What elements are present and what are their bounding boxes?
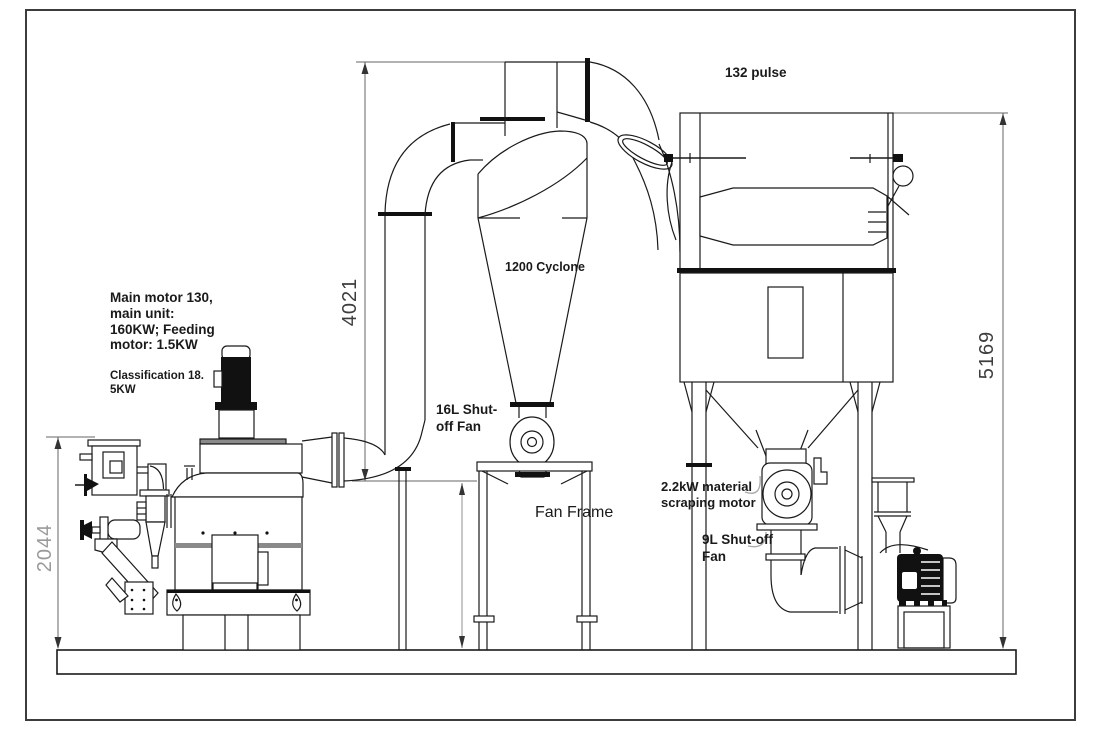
outlet-duct <box>302 117 545 650</box>
engineering-drawing-page: Main motor 130, main unit: 160KW; Feedin… <box>0 0 1101 731</box>
shutoff-fan-16l-line: off Fan <box>436 419 497 436</box>
main-fan-unit <box>872 478 956 648</box>
scraping-motor-line: 2.2kW material <box>661 479 756 495</box>
cyclone-to-baghouse-duct <box>557 58 680 252</box>
dimension-5169-text: 5169 <box>976 315 1000 395</box>
dimension-2044-text: 2044 <box>34 508 58 588</box>
dimension-frame-height <box>459 483 465 648</box>
fan-frame-label: Fan Frame <box>535 504 613 522</box>
classification-note-line: Classification 18. <box>110 370 204 384</box>
diagram-canvas <box>0 0 1101 731</box>
main-motor-note-line: Main motor 130, <box>110 290 215 306</box>
scraping-motor-label: 2.2kW material scraping motor <box>661 479 756 511</box>
feeder-assembly <box>75 440 171 614</box>
shutoff-fan-9l-line: 9L Shut-off <box>702 531 773 548</box>
classification-note: Classification 18. 5KW <box>110 370 204 397</box>
classification-note-line: 5KW <box>110 384 204 398</box>
cyclone-label: 1200 Cyclone <box>505 260 585 274</box>
pulse-baghouse <box>664 113 913 650</box>
main-motor-note-line: motor: 1.5KW <box>110 337 215 353</box>
foundation-base <box>57 650 1016 674</box>
scraping-motor-line: scraping motor <box>661 495 756 511</box>
shutoff-fan-9l-label: 9L Shut-off Fan <box>702 531 773 565</box>
pulse-label: 132 pulse <box>725 65 787 80</box>
shutoff-fan-9l-line: Fan <box>702 548 773 565</box>
main-motor-note-line: main unit: <box>110 306 215 322</box>
shutoff-fan-16l-line: 16L Shut- <box>436 402 497 419</box>
fan-frame <box>474 462 597 650</box>
main-motor-note: Main motor 130, main unit: 160KW; Feedin… <box>110 290 215 353</box>
main-motor-note-line: 160KW; Feeding <box>110 322 215 338</box>
dimension-4021-text: 4021 <box>339 262 363 342</box>
shutoff-fan-16l-label: 16L Shut- off Fan <box>436 402 497 435</box>
cyclone <box>478 62 587 403</box>
